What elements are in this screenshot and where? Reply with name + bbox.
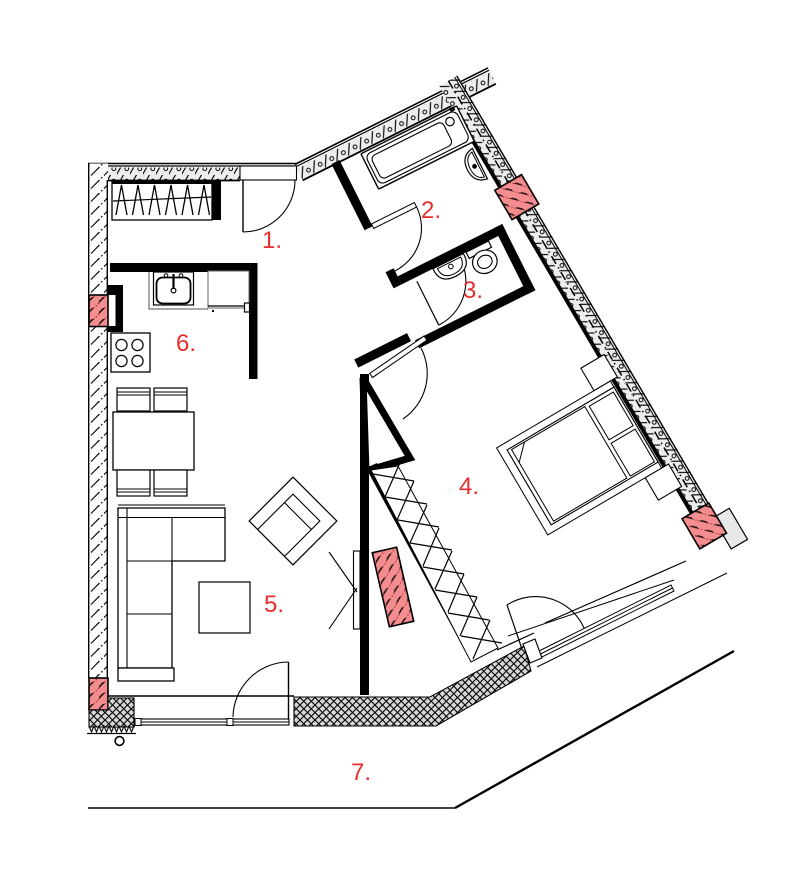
svg-text:6.: 6. (176, 330, 196, 357)
svg-text:3.: 3. (463, 277, 483, 304)
svg-text:1.: 1. (262, 227, 282, 254)
svg-text:4.: 4. (459, 473, 479, 500)
svg-text:7.: 7. (351, 759, 371, 786)
svg-text:5.: 5. (264, 591, 284, 618)
svg-text:2.: 2. (421, 197, 441, 224)
